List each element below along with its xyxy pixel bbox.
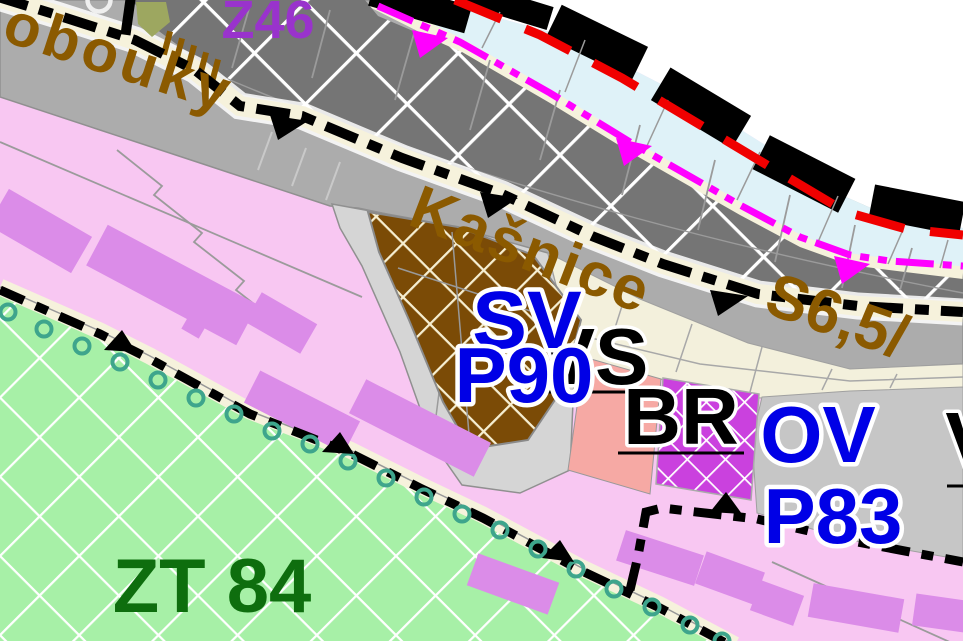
label-zone-v: V <box>945 396 963 485</box>
label-zone-ov: OV <box>760 390 876 479</box>
label-zone-zt84: ZT 84 <box>113 544 312 629</box>
label-zone-br: BR <box>623 372 739 461</box>
zoning-map-canvas[interactable]: Z46 obouky Kašnice S6,5/ VS BR V SV P90 … <box>0 0 963 641</box>
label-zone-ov-code: P83 <box>764 472 903 560</box>
zoning-map-viewport[interactable]: Z46 obouky Kašnice S6,5/ VS BR V SV P90 … <box>0 0 963 641</box>
label-zone-z46: Z46 <box>221 0 314 50</box>
label-zone-sv-code: P90 <box>455 331 594 419</box>
